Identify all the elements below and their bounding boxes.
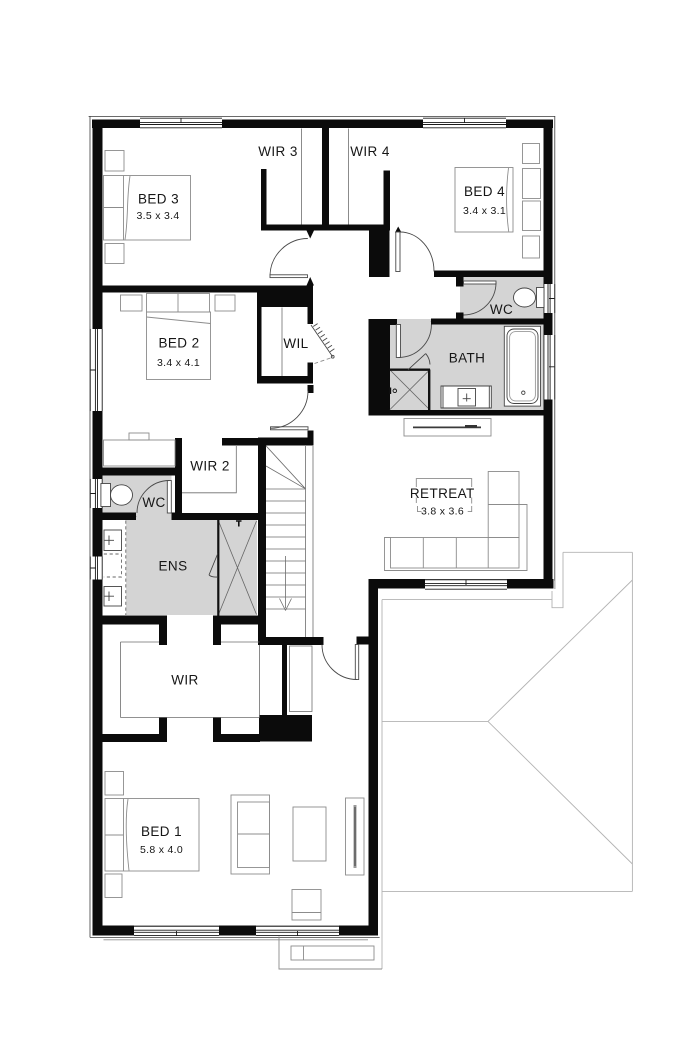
svg-text:3.4 x 3.1: 3.4 x 3.1 (463, 205, 506, 217)
svg-text:3.8 x 3.6: 3.8 x 3.6 (421, 506, 464, 518)
svg-text:WIL: WIL (283, 336, 308, 351)
svg-text:ENS: ENS (159, 558, 188, 573)
svg-text:5.8 x 4.0: 5.8 x 4.0 (140, 844, 183, 856)
svg-text:WIR: WIR (171, 672, 198, 687)
svg-text:BATH: BATH (449, 350, 486, 365)
svg-text:WIR 4: WIR 4 (350, 144, 390, 159)
svg-text:WC: WC (142, 495, 165, 510)
svg-text:BED 1: BED 1 (141, 824, 182, 839)
svg-text:3.5 x 3.4: 3.5 x 3.4 (137, 210, 180, 222)
svg-text:WIR 2: WIR 2 (190, 458, 230, 473)
svg-text:WIR 3: WIR 3 (258, 144, 298, 159)
svg-text:WC: WC (490, 302, 513, 317)
svg-text:BED 3: BED 3 (138, 191, 179, 206)
svg-text:3.4 x 4.1: 3.4 x 4.1 (157, 357, 200, 369)
svg-text:BED 4: BED 4 (464, 184, 505, 199)
svg-text:BED 2: BED 2 (158, 335, 199, 350)
svg-text:RETREAT: RETREAT (410, 486, 475, 501)
